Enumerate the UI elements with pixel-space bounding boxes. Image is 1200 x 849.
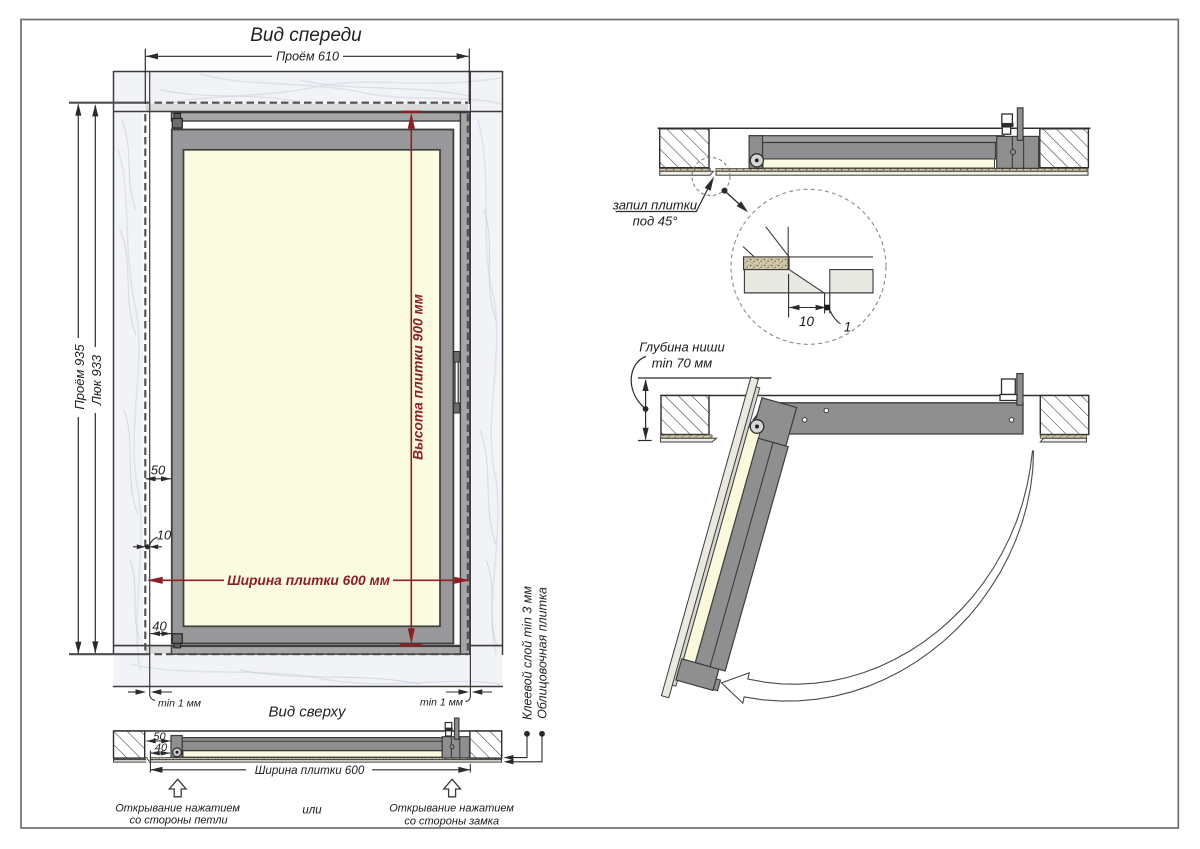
svg-text:Проём 935: Проём 935	[72, 344, 87, 410]
svg-text:min 1 мм: min 1 мм	[158, 698, 201, 710]
svg-text:min 1 мм: min 1 мм	[420, 697, 463, 709]
svg-text:под 45°: под 45°	[633, 214, 678, 229]
svg-text:10: 10	[157, 528, 172, 543]
svg-text:со стороны петли: со стороны петли	[130, 815, 228, 827]
svg-text:или: или	[302, 805, 322, 817]
svg-text:1: 1	[844, 320, 852, 335]
svg-text:Вид сверху: Вид сверху	[269, 704, 347, 721]
svg-text:min 70 мм: min 70 мм	[652, 356, 713, 371]
svg-text:Открывание нажатием: Открывание нажатием	[389, 803, 514, 815]
svg-text:50: 50	[153, 731, 166, 743]
svg-text:Ширина плитки 600: Ширина плитки 600	[255, 764, 365, 777]
svg-text:со стороны замка: со стороны замка	[404, 815, 499, 827]
svg-text:Глубина ниши: Глубина ниши	[639, 340, 724, 355]
svg-text:Проём 610: Проём 610	[276, 50, 339, 64]
svg-text:Люк 933: Люк 933	[89, 354, 104, 406]
svg-text:запил плитки: запил плитки	[612, 198, 697, 213]
svg-text:Клеевой слой min 3 мм: Клеевой слой min 3 мм	[521, 586, 535, 720]
svg-text:10: 10	[799, 314, 815, 329]
svg-text:Ширина плитки 600 мм: Ширина плитки 600 мм	[227, 573, 390, 588]
svg-text:50: 50	[151, 463, 166, 478]
svg-text:Высота плитки 900 мм: Высота плитки 900 мм	[411, 294, 426, 460]
svg-text:Открывание нажатием: Открывание нажатием	[115, 803, 240, 815]
svg-text:Вид спереди: Вид спереди	[250, 25, 362, 46]
svg-text:Облицовочная плитка: Облицовочная плитка	[536, 587, 550, 719]
svg-text:40: 40	[152, 619, 167, 634]
svg-text:40: 40	[155, 742, 168, 754]
